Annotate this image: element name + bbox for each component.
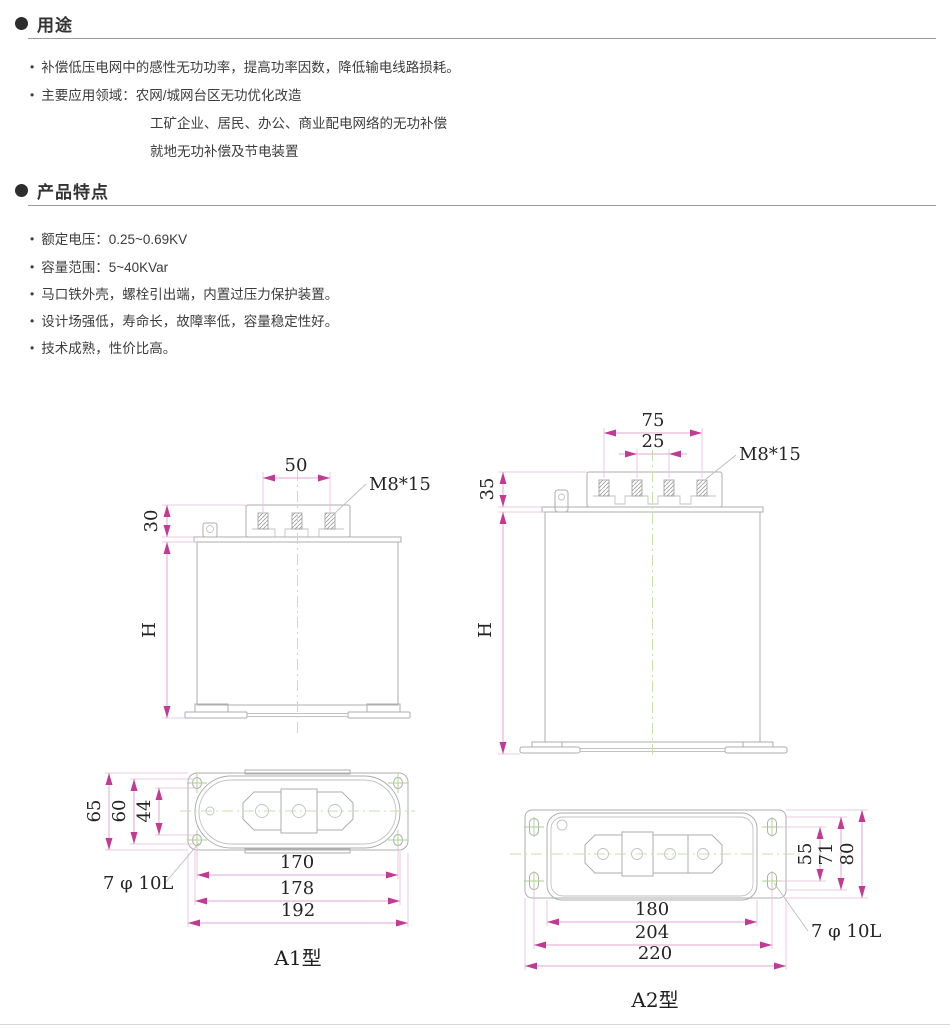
- features-section-header: 产品特点: [15, 178, 109, 203]
- feature-bullet-1: 额定电压：0.25~0.69KV: [30, 228, 187, 248]
- dim-flange-width: 220: [638, 943, 672, 964]
- datasheet-page: 用途 补偿低压电网中的感性无功功率，提高功率因数，降低输电线路损耗。 主要应用领…: [0, 0, 950, 1028]
- feature-bullet-2: 容量范围：5~40KVar: [30, 256, 168, 276]
- a2-capacitor-outline: [520, 472, 787, 753]
- dim-body-width: 178: [280, 878, 314, 899]
- dim-body-width: 180: [635, 899, 669, 920]
- a1-caption: A1型: [243, 942, 353, 971]
- section-divider: [28, 205, 936, 206]
- dim-hole-pitch-v: 44: [134, 800, 155, 823]
- dim-body-height: H: [475, 622, 496, 638]
- usage-bullet-2: 主要应用领域：农网/城网台区无功优化改造: [30, 84, 301, 104]
- a2-top-view-drawing: 55 71 80 180 204 220 7 φ 10L: [495, 790, 880, 985]
- dim-flange-width: 192: [281, 900, 315, 921]
- dim-flange-height: 65: [84, 800, 105, 823]
- hole-spec-label: 7 φ 10L: [103, 873, 173, 894]
- usage-subline-2: 就地无功补偿及节电装置: [150, 140, 299, 160]
- a1-top-view-drawing: 65 60 44 170 178 192 7 φ 10L: [85, 755, 455, 960]
- a2-footprint-outline: [525, 810, 786, 900]
- usage-subline-1: 工矿企业、居民、办公、商业配电网络的无功补偿: [150, 112, 447, 132]
- dim-body-depth: 60: [109, 800, 130, 823]
- page-bottom-divider: [0, 1024, 950, 1025]
- usage-section-header: 用途: [15, 11, 73, 36]
- usage-bullet-1: 补偿低压电网中的感性无功功率，提高功率因数，降低输电线路损耗。: [30, 56, 460, 76]
- a2-caption: A2型: [600, 984, 710, 1013]
- feature-bullet-4: 设计场强低，寿命长，故障率低，容量稳定性好。: [30, 310, 338, 330]
- dim-terminal-pitch: 50: [285, 455, 308, 476]
- dim-hole-pitch-v: 55: [795, 843, 816, 866]
- a2-front-dimensions: 75 25 M8*15 35 H: [475, 410, 801, 754]
- section-bullet-icon: [15, 17, 28, 30]
- usage-section-title: 用途: [37, 11, 73, 36]
- dim-lid-height: 35: [477, 478, 498, 501]
- dim-flange-height: 80: [837, 843, 858, 866]
- thread-spec-label: M8*15: [369, 474, 431, 495]
- a2-top-dimensions: 55 71 80 180 204 220 7 φ 10L: [525, 810, 881, 970]
- a2-front-view-drawing: 75 25 M8*15 35 H: [470, 405, 815, 760]
- a1-front-dimensions: 50 M8*15 30 H: [139, 455, 431, 718]
- dim-hole-pitch-h: 204: [635, 922, 669, 943]
- dim-lid-height: 30: [141, 510, 162, 533]
- thread-spec-label: M8*15: [739, 444, 801, 465]
- features-section-title: 产品特点: [37, 178, 109, 203]
- dim-body-height: H: [139, 622, 160, 638]
- feature-bullet-3: 马口铁外壳，螺栓引出端，内置过压力保护装置。: [30, 283, 338, 303]
- hole-spec-label: 7 φ 10L: [811, 921, 881, 942]
- a1-front-view-drawing: 50 M8*15 30 H: [90, 418, 430, 748]
- section-divider: [28, 38, 936, 39]
- feature-bullet-5: 技术成熟，性价比高。: [30, 337, 176, 357]
- dim-terminal-span: 75: [642, 410, 665, 431]
- dim-hole-pitch-h: 170: [280, 852, 314, 873]
- section-bullet-icon: [15, 184, 28, 197]
- dim-hole-span-v: 71: [816, 843, 837, 866]
- dim-terminal-pitch: 25: [642, 431, 665, 452]
